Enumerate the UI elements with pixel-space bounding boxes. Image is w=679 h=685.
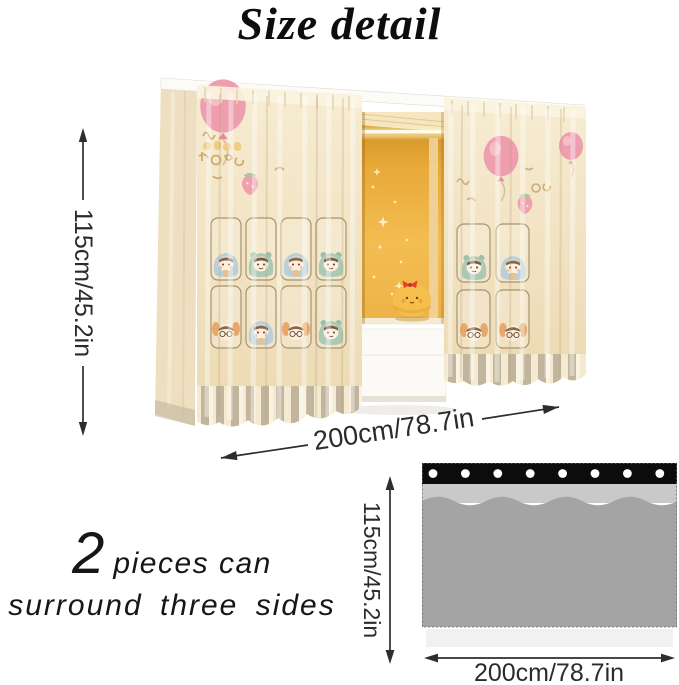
pieces-note: 2pieces can surround three sides: [2, 520, 342, 623]
curtain-panel-diagram: 115cm/45.2in 200cm/78.7in: [352, 455, 679, 685]
arrow-right-icon: [542, 402, 559, 413]
arrow-left-icon: [220, 451, 237, 462]
page-title: Size detail: [0, 0, 679, 54]
panel-height-dimension: 115cm/45.2in: [359, 476, 394, 664]
bed-opening: [358, 112, 448, 330]
panel-width-dimension: 200cm/78.7in: [424, 654, 675, 685]
photo-width-label: 200cm/78.7in: [311, 402, 476, 456]
product-photo: [95, 72, 590, 452]
arrow-down-icon: [386, 650, 395, 664]
arrow-down-icon: [79, 422, 87, 436]
photo-height-label: 115cm/45.2in: [69, 209, 97, 357]
curtain-side-face: [155, 78, 197, 426]
curtain-left: [197, 79, 362, 432]
arrow-up-icon: [386, 476, 395, 490]
arrow-left-icon: [424, 654, 438, 663]
pieces-note-line1: pieces can: [113, 547, 271, 580]
arrow-right-icon: [661, 654, 675, 663]
panel-height-label: 115cm/45.2in: [359, 502, 385, 638]
curtain-right-hem: [444, 354, 586, 392]
panel-width-label: 200cm/78.7in: [474, 659, 624, 685]
size-detail-infographic: Size detail: [0, 0, 679, 685]
diagram-header-strip: [422, 463, 677, 484]
diagram-hem-strip: [426, 629, 673, 647]
photo-height-dimension: 115cm/45.2in: [62, 126, 104, 438]
curtain-right: [444, 98, 586, 392]
pieces-note-line2: surround three sides: [2, 589, 342, 623]
pieces-count: 2: [72, 521, 104, 586]
arrow-up-icon: [79, 128, 87, 142]
